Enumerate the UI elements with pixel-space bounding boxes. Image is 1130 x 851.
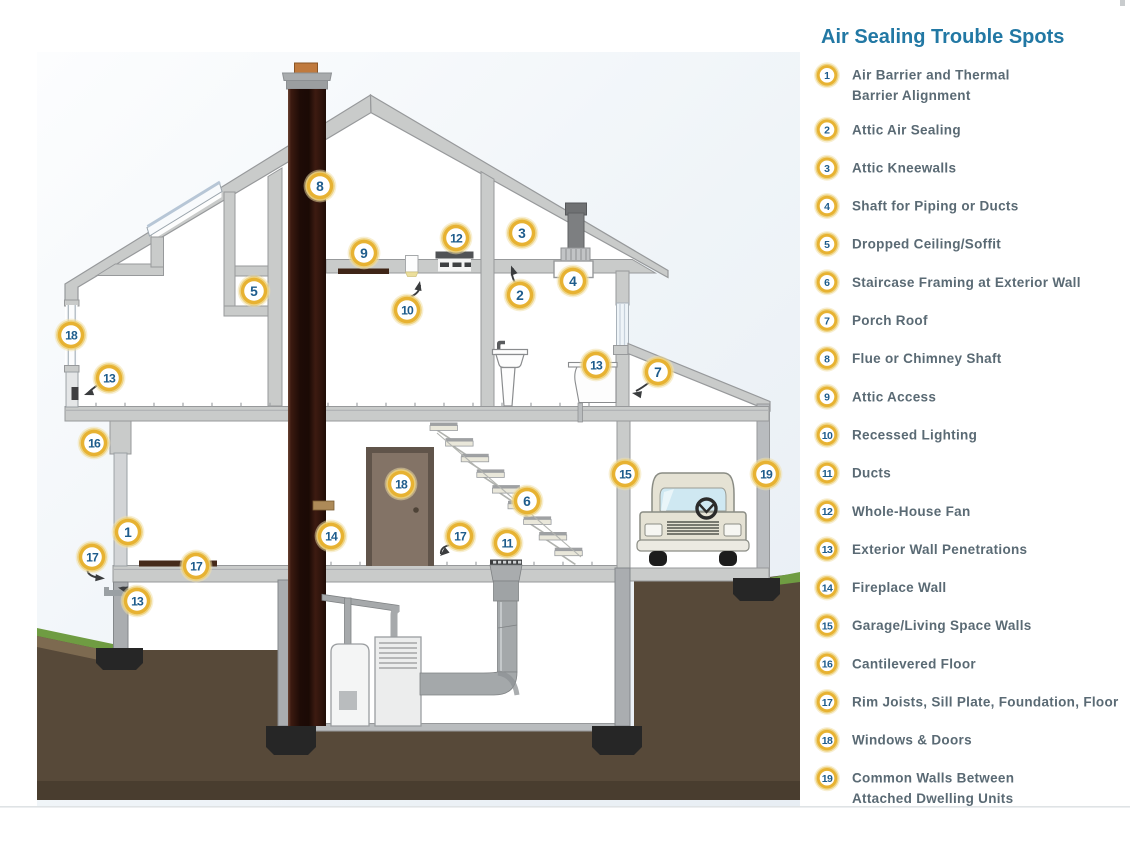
svg-text:10: 10 [401,303,414,317]
svg-text:Attic Air Sealing: Attic Air Sealing [852,122,961,137]
svg-text:Attic Kneewalls: Attic Kneewalls [852,160,956,175]
svg-text:16: 16 [822,659,833,671]
svg-text:Recessed Lighting: Recessed Lighting [852,428,977,443]
svg-text:6: 6 [824,277,830,289]
svg-text:Staircase Framing at Exterior: Staircase Framing at Exterior Wall [852,275,1081,290]
svg-text:Whole-House Fan: Whole-House Fan [852,504,971,519]
svg-text:12: 12 [450,231,463,245]
svg-text:13: 13 [103,371,116,385]
svg-text:Cantilevered Floor: Cantilevered Floor [852,656,976,671]
svg-text:15: 15 [822,621,833,633]
svg-text:11: 11 [822,468,833,480]
svg-text:Attic Access: Attic Access [852,389,936,404]
svg-text:15: 15 [619,467,632,481]
svg-text:4: 4 [824,201,830,213]
svg-text:Air Sealing Trouble Spots: Air Sealing Trouble Spots [821,26,1064,48]
svg-text:Air Barrier and Thermal: Air Barrier and Thermal [852,68,1010,83]
svg-text:Windows & Doors: Windows & Doors [852,733,972,748]
svg-text:17: 17 [822,697,833,709]
svg-text:7: 7 [824,315,830,327]
svg-text:3: 3 [824,163,830,175]
svg-text:6: 6 [523,494,531,509]
svg-text:13: 13 [822,544,833,556]
svg-text:Attached Dwelling Units: Attached Dwelling Units [852,791,1013,806]
svg-text:17: 17 [454,529,467,543]
svg-text:13: 13 [590,358,603,372]
svg-text:2: 2 [516,288,524,303]
svg-text:Ducts: Ducts [852,466,891,481]
svg-text:7: 7 [654,365,662,380]
svg-text:14: 14 [325,529,338,543]
svg-text:9: 9 [824,392,830,404]
svg-text:17: 17 [190,559,203,573]
svg-text:17: 17 [86,550,99,564]
svg-text:5: 5 [250,284,258,299]
svg-text:Exterior Wall Penetrations: Exterior Wall Penetrations [852,542,1027,557]
svg-text:14: 14 [822,582,833,594]
svg-text:16: 16 [88,436,101,450]
svg-text:1: 1 [824,70,830,82]
svg-text:13: 13 [131,594,144,608]
svg-text:Fireplace Wall: Fireplace Wall [852,580,946,595]
svg-text:11: 11 [501,536,513,550]
svg-text:Common Walls Between: Common Walls Between [852,771,1014,786]
svg-text:19: 19 [822,773,833,785]
svg-text:8: 8 [316,179,324,194]
svg-text:4: 4 [569,274,577,289]
svg-text:1: 1 [124,525,132,540]
svg-text:18: 18 [65,328,78,342]
svg-text:9: 9 [360,246,368,261]
svg-text:19: 19 [760,467,773,481]
svg-text:Barrier Alignment: Barrier Alignment [852,88,971,103]
svg-text:8: 8 [824,354,830,366]
svg-text:10: 10 [822,430,833,442]
svg-text:Rim Joists, Sill Plate, Founda: Rim Joists, Sill Plate, Foundation, Floo… [852,695,1119,710]
svg-text:Porch Roof: Porch Roof [852,313,928,328]
svg-text:5: 5 [824,239,830,251]
svg-text:18: 18 [822,735,833,747]
svg-text:2: 2 [824,125,830,137]
svg-text:Flue or Chimney Shaft: Flue or Chimney Shaft [852,351,1002,366]
svg-text:12: 12 [822,506,833,518]
svg-text:Dropped Ceiling/Soffit: Dropped Ceiling/Soffit [852,237,1001,252]
svg-text:Garage/Living Space Walls: Garage/Living Space Walls [852,618,1032,633]
svg-text:Shaft for Piping or Ducts: Shaft for Piping or Ducts [852,199,1019,214]
svg-text:18: 18 [395,477,408,491]
svg-text:3: 3 [518,226,526,241]
